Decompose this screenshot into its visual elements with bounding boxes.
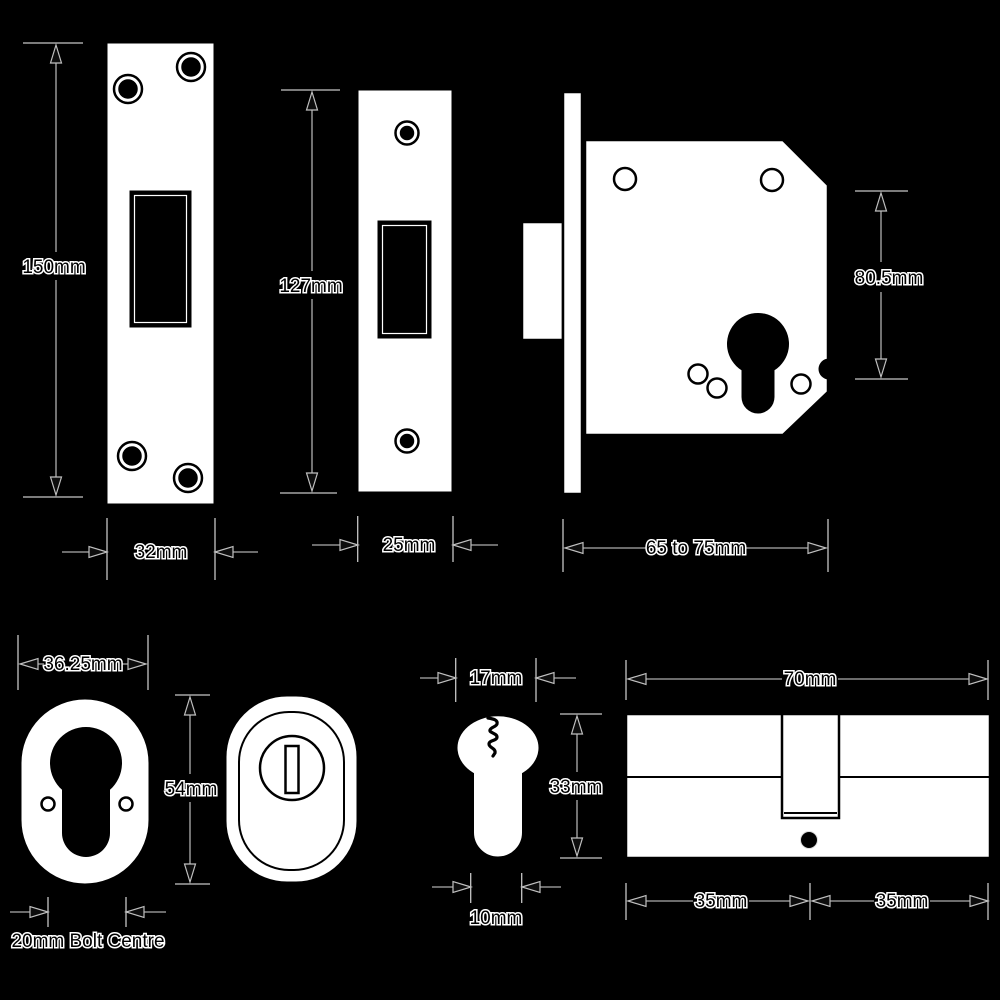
arrow-left (215, 547, 233, 558)
arrow-left (126, 907, 144, 918)
arrow-left (20, 659, 38, 670)
label-80-5mm: 80.5mm (855, 268, 924, 289)
arrow-down (51, 477, 62, 495)
arrow-right (30, 907, 48, 918)
arrow-up (876, 193, 887, 211)
label-10mm: 10mm (470, 908, 523, 929)
dim-escutcheon-width: 36.25mm (18, 635, 148, 690)
faceplate-large (106, 42, 215, 505)
arrow-right (970, 896, 988, 907)
arrow-right (790, 896, 808, 907)
escutcheon-security (225, 695, 358, 883)
cylinder-fixing-hole (801, 832, 818, 849)
arrow-left (536, 673, 554, 684)
dim-cylinder-stem-width: 10mm (432, 873, 561, 929)
arrow-up (51, 45, 62, 63)
arrow-right (340, 540, 358, 551)
lock-faceplate-strip (563, 92, 582, 494)
dim-cylinder-length: 70mm (626, 660, 988, 700)
label-70mm: 70mm (784, 669, 837, 690)
cylinder-side (626, 714, 990, 858)
arrow-left (628, 674, 646, 685)
lock-fixing-hole-right (761, 169, 783, 191)
arrow-left (565, 543, 583, 554)
arrow-down (572, 838, 583, 856)
lock-case (522, 92, 840, 494)
arrow-left (628, 896, 646, 907)
dim-faceplate-large-width: 32mm (62, 518, 258, 580)
lock-small-hole-1 (689, 365, 708, 384)
arrow-left (522, 882, 540, 893)
arrow-up (572, 716, 583, 734)
arrow-right (808, 543, 826, 554)
escutcheon-bolt-hole-left (42, 798, 55, 811)
label-150mm: 150mm (22, 257, 85, 278)
cylinder-cam (782, 714, 839, 818)
lock-bolt (522, 222, 563, 340)
faceplate-small-bolt-cutout (379, 222, 430, 337)
lock-edge-notch (819, 359, 840, 380)
label-32mm: 32mm (135, 542, 188, 563)
label-65-75mm: 65 to 75mm (646, 538, 746, 559)
dim-cylinder-face-height: 33mm (550, 714, 603, 858)
dim-faceplate-small-width: 25mm (312, 516, 498, 562)
arrow-right (89, 547, 107, 558)
dim-lock-case-height: 80.5mm (855, 191, 924, 379)
dim-cylinder-face-width: 17mm (420, 658, 576, 702)
escutcheon-bolt-hole-right (120, 798, 133, 811)
lock-dimensions-diagram: 150mm 32mm 127mm 25 (0, 0, 1000, 1000)
faceplate-large-bolt-cutout (131, 192, 190, 326)
label-33mm: 33mm (550, 777, 603, 798)
escutcheon-euro (20, 698, 150, 885)
dim-faceplate-small-height: 127mm (279, 90, 342, 493)
label-54mm: 54mm (165, 779, 218, 800)
arrow-down (876, 359, 887, 377)
diagram-canvas: 150mm 32mm 127mm 25 (0, 0, 1000, 1000)
label-35mm-right: 35mm (876, 891, 929, 912)
dim-escutcheon-height: 54mm (165, 695, 218, 884)
label-35mm-left: 35mm (695, 891, 748, 912)
faceplate-small (357, 89, 453, 493)
dim-lock-case-width: 65 to 75mm (563, 519, 828, 572)
label-25mm: 25mm (383, 535, 436, 556)
lock-fixing-hole-left (614, 168, 636, 190)
cylinder-front (456, 715, 540, 858)
dim-escutcheon-bolt-centre: 20mm Bolt Centre (10, 897, 166, 952)
label-36-25mm: 36.25mm (43, 654, 122, 675)
arrow-down (185, 864, 196, 882)
dim-faceplate-large-height: 150mm (22, 43, 85, 497)
dim-cylinder-halves: 35mm 35mm (626, 883, 988, 920)
arrow-right (453, 882, 471, 893)
arrow-up (185, 697, 196, 715)
escutcheon-security-keyway (286, 746, 299, 793)
arrow-right (128, 659, 146, 670)
arrow-right (969, 674, 987, 685)
lock-small-hole-2 (708, 379, 727, 398)
label-20mm-bolt-centre: 20mm Bolt Centre (11, 931, 164, 952)
label-17mm: 17mm (470, 668, 523, 689)
label-127mm: 127mm (279, 276, 342, 297)
arrow-down (307, 473, 318, 491)
arrow-right (438, 673, 456, 684)
arrow-left (812, 896, 830, 907)
arrow-left (453, 540, 471, 551)
arrow-up (307, 92, 318, 110)
lock-small-hole-3 (792, 375, 811, 394)
